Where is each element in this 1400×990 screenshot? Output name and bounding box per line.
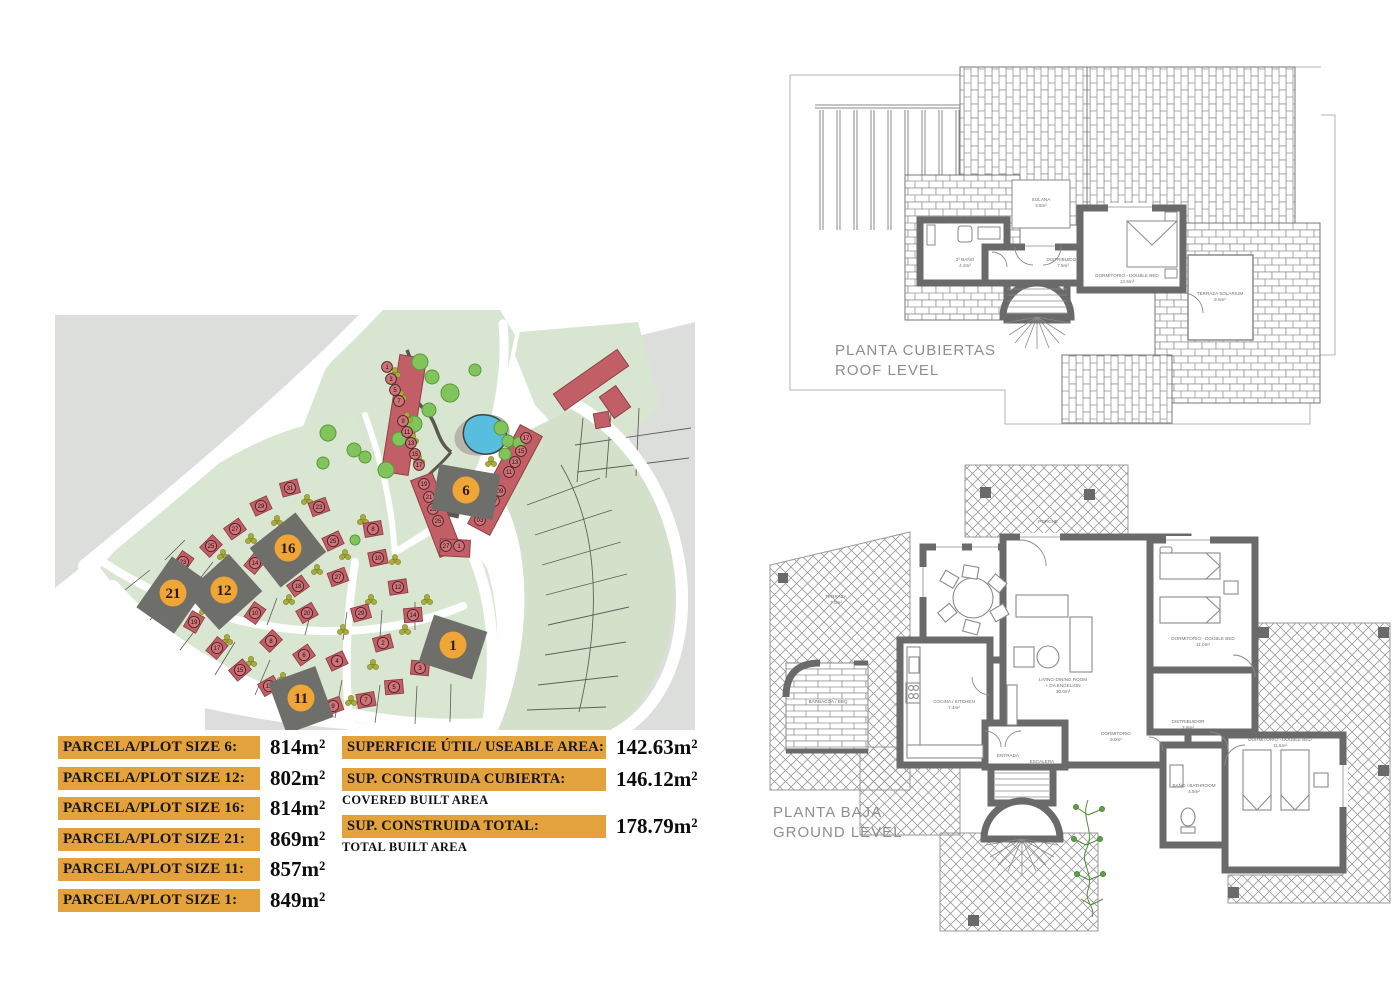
plot-label: PARCELA/PLOT SIZE 21: — [58, 828, 260, 851]
room-label: ENTRADA — [997, 753, 1020, 758]
room-label: TERRAZA SOLARIUM — [1197, 291, 1244, 296]
shrub-icon — [304, 494, 309, 499]
shrub-icon — [301, 499, 306, 504]
tree-icon — [494, 421, 508, 435]
highlighted-plot-number: 1 — [449, 638, 457, 654]
area-sublabel: TOTAL BUILT AREA — [342, 840, 698, 855]
area-label: SUP. CONSTRUIDA TOTAL: — [342, 815, 606, 838]
area-value: 142.63m² — [616, 736, 698, 759]
shrub-icon — [424, 594, 429, 599]
shrub-icon — [367, 664, 372, 669]
shrub-icon — [485, 461, 490, 466]
brochure-page: 3129272523191715131418102086423252781029… — [0, 0, 1400, 990]
room-label: 4.5m² — [1188, 789, 1200, 794]
plot-label: PARCELA/PLOT SIZE 12: — [58, 767, 260, 790]
shrub-icon — [314, 564, 319, 569]
plot-label: PARCELA/PLOT SIZE 11: — [58, 858, 260, 881]
plot-number: 14 — [410, 613, 417, 619]
room-label: DORMITORIO - DOUBLE BED — [1171, 636, 1235, 641]
area-label: SUPERFICIE ÚTIL/ USEABLE AREA: — [342, 736, 606, 759]
room-label: 2.8m² — [1182, 725, 1194, 730]
plot-number: 29 — [258, 504, 265, 510]
shrub-icon — [342, 549, 347, 554]
table-row: SUP. CONSTRUIDA TOTAL: 178.79m² TOTAL BU… — [342, 815, 698, 855]
tree-icon — [502, 435, 514, 447]
plot-number: 11 — [404, 430, 411, 436]
shrub-icon — [427, 599, 432, 604]
roof-plan: SOLANA3.5m²2º BAÑO4.2m²DISTRIBUIDOR7.5m²… — [775, 55, 1345, 425]
room-label: TERRAZA — [825, 594, 847, 599]
bbq-area — [786, 663, 868, 751]
plot-label: PARCELA/PLOT SIZE 16: — [58, 797, 260, 820]
plot-value: 857m² — [270, 858, 325, 881]
tree-icon — [412, 354, 428, 370]
tree-icon — [499, 448, 511, 460]
room-label: 7.5m² — [1057, 263, 1069, 268]
plot-number: 23 — [316, 505, 323, 511]
shrub-icon — [317, 569, 322, 574]
shrub-icon — [227, 639, 232, 644]
plot-number: 14 — [252, 561, 259, 567]
room-label: DISTRIBUIDOR — [1047, 257, 1081, 262]
sofa — [1070, 617, 1092, 672]
shrub-icon — [368, 594, 373, 599]
plot-number: 18 — [295, 584, 302, 590]
shrub-icon — [245, 538, 250, 543]
room-label: 3.5m² — [1035, 203, 1047, 208]
highlighted-plot-number: 11 — [294, 691, 308, 707]
room-label: PORCHE — [1038, 519, 1058, 524]
stair-bulb — [984, 801, 1060, 839]
shrub-icon — [248, 533, 253, 538]
room-label: + DA ENGELION — [1045, 683, 1080, 688]
room-label: DORMITORIO - DOUBLE BED — [1248, 737, 1312, 742]
plot-number: 03 — [477, 518, 484, 524]
room-label: DORMITORIO — [1101, 731, 1131, 736]
coffee-table — [1037, 646, 1059, 668]
shrub-icon — [389, 559, 394, 564]
shrub-icon — [392, 554, 397, 559]
shrub-icon — [399, 629, 404, 634]
room-label: COCINA / KITCHEN — [933, 699, 975, 704]
shrub-icon — [395, 559, 400, 564]
room-label: LIVING-DINING ROOM — [1039, 677, 1087, 682]
tree-icon — [378, 462, 394, 478]
tv-unit — [1007, 685, 1017, 725]
plot-number: 29 — [358, 611, 365, 617]
plot-number: 17 — [523, 436, 530, 442]
ground-plan: TERRAZA7.0m²PORCHELIVING-DINING ROOM+ DA… — [758, 435, 1400, 935]
dining-table — [953, 578, 993, 618]
shrub-icon — [248, 656, 253, 661]
roof-plan-subtitle: ROOF LEVEL — [835, 362, 939, 379]
room-label: 7.4m² — [948, 705, 960, 710]
ground-plan-title: PLANTA BAJA — [773, 804, 882, 821]
tree-icon — [422, 403, 436, 417]
area-sublabel: COVERED BUILT AREA — [342, 793, 698, 808]
plot-number: 15 — [237, 668, 244, 674]
shrub-icon — [289, 599, 294, 604]
plot-number: 10 — [375, 556, 382, 562]
shrub-icon — [373, 664, 378, 669]
shrub-icon — [224, 634, 229, 639]
shrub-icon — [337, 629, 342, 634]
plot-number: 27 — [232, 527, 239, 533]
room-label: DORMITORIO - DOUBLE BED — [1095, 273, 1159, 278]
plot-number: 19 — [191, 620, 198, 626]
kitchen-counter — [907, 745, 983, 758]
tree-icon — [441, 384, 459, 402]
plot-size-table: PARCELA/PLOT SIZE 6: 814m² PARCELA/PLOT … — [58, 736, 325, 912]
shrub-icon — [283, 599, 288, 604]
tree-icon — [320, 425, 336, 441]
plot-value: 869m² — [270, 828, 325, 851]
shrub-icon — [357, 519, 362, 524]
plot-number: 12 — [395, 585, 402, 591]
table-row: PARCELA/PLOT SIZE 12: 802m² — [58, 767, 325, 790]
stair-bulb — [1003, 283, 1071, 317]
plot-number: 15 — [412, 452, 419, 458]
tree-icon — [350, 535, 360, 545]
area-value: 178.79m² — [616, 815, 698, 838]
room-label: 9.5m² — [1214, 297, 1226, 302]
room-label: 30.0m² — [1056, 689, 1071, 694]
highlighted-plot-number: 12 — [217, 583, 232, 599]
table-row: PARCELA/PLOT SIZE 1: 849m² — [58, 889, 325, 912]
table-row: PARCELA/PLOT SIZE 21: 869m² — [58, 828, 325, 851]
shrub-icon — [491, 461, 496, 466]
shrub-icon — [348, 695, 353, 700]
shrub-icon — [286, 594, 291, 599]
plot-number: 15 — [518, 449, 525, 455]
room-label: BAÑO / BATHROOM — [1172, 782, 1215, 788]
site-plan: 3129272523191715131418102086423252781029… — [55, 310, 695, 730]
plot-label: PARCELA/PLOT SIZE 1: — [58, 889, 260, 912]
shrub-icon — [340, 624, 345, 629]
plot-value: 849m² — [270, 889, 325, 912]
plot-number: 10 — [252, 611, 259, 617]
tree-icon — [317, 457, 329, 469]
table-row: PARCELA/PLOT SIZE 6: 814m² — [58, 736, 325, 759]
plot-number: 25 — [435, 519, 442, 525]
shrub-icon — [220, 549, 225, 554]
shrub-icon — [217, 554, 222, 559]
highlighted-plot-number: 16 — [281, 541, 297, 557]
shrub-icon — [351, 700, 356, 705]
room-label: 7.0m² — [830, 600, 842, 605]
shrub-icon — [339, 554, 344, 559]
ground-plan-subtitle: GROUND LEVEL — [773, 824, 903, 841]
toilet — [1181, 808, 1195, 826]
shrub-icon — [392, 367, 397, 372]
plot-number: 17 — [214, 646, 221, 652]
roof-plan-title: PLANTA CUBIERTAS — [835, 342, 996, 359]
room-label: 4.2m² — [959, 263, 971, 268]
shrub-icon — [345, 554, 350, 559]
shrub-icon — [343, 629, 348, 634]
shrub-icon — [251, 661, 256, 666]
tree-icon — [469, 364, 481, 376]
shrub-icon — [360, 514, 365, 519]
plot-number: 11 — [506, 470, 513, 476]
tree-icon — [347, 443, 361, 457]
shrub-icon — [488, 456, 493, 461]
armchair — [1014, 647, 1034, 667]
shrub-icon — [370, 659, 375, 664]
plot-value: 814m² — [270, 736, 325, 759]
plot-number: 13 — [512, 460, 519, 466]
shrub-icon — [405, 629, 410, 634]
built-area-table: SUPERFICIE ÚTIL/ USEABLE AREA: 142.63m² … — [342, 736, 698, 855]
room-label: SOLANA — [1032, 197, 1052, 202]
plot-label: PARCELA/PLOT SIZE 6: — [58, 736, 260, 759]
plot-number: 17 — [416, 463, 423, 469]
shrub-icon — [371, 599, 376, 604]
plot-value: 802m² — [270, 767, 325, 790]
plot-number: 13 — [408, 441, 415, 447]
area-value: 146.12m² — [616, 768, 698, 791]
sofa — [1016, 595, 1068, 617]
shrub-icon — [271, 520, 276, 525]
shrub-icon — [345, 700, 350, 705]
plot-value: 814m² — [270, 797, 325, 820]
room-label: DISTRIBUIDOR — [1172, 719, 1206, 724]
plot-number: 20 — [304, 611, 311, 617]
table-row: PARCELA/PLOT SIZE 11: 857m² — [58, 858, 325, 881]
room-label: 13.5m² — [1120, 279, 1135, 284]
room-label: ESCALERA — [1030, 759, 1055, 764]
plot-number: 31 — [287, 486, 294, 492]
hall — [985, 247, 1090, 283]
room-label: 9.0m² — [1110, 737, 1122, 742]
highlighted-plot-number: 21 — [166, 586, 181, 602]
room-label: 2º BAÑO — [956, 256, 975, 262]
shrub-icon — [311, 569, 316, 574]
highlighted-plot-number: 6 — [462, 483, 470, 499]
table-row: PARCELA/PLOT SIZE 16: 814m² — [58, 797, 325, 820]
plot-number: 27 — [443, 544, 450, 550]
shrub-icon — [274, 515, 279, 520]
shrub-icon — [251, 538, 256, 543]
room-label: 11.0m² — [1196, 642, 1210, 647]
plot-number: 27 — [335, 575, 342, 581]
plot-number: 25 — [208, 544, 215, 550]
plot-number: 25 — [330, 539, 337, 545]
area-label: SUP. CONSTRUIDA CUBIERTA: — [342, 768, 606, 791]
kitchen-sink — [909, 657, 919, 673]
shrub-icon — [280, 672, 285, 677]
room-label: 11.5m² — [1273, 743, 1287, 748]
table-row: SUPERFICIE ÚTIL/ USEABLE AREA: 142.63m² — [342, 736, 698, 759]
table-row: SUP. CONSTRUIDA CUBIERTA: 146.12m² COVER… — [342, 768, 698, 808]
tree-icon — [425, 370, 439, 384]
room-label: 4.0m² — [1036, 765, 1048, 770]
shrub-icon — [402, 624, 407, 629]
room-label: BARBACOA / BBQ — [809, 699, 848, 704]
plot-number: 19 — [421, 482, 428, 488]
plot-number: 21 — [426, 495, 433, 501]
shrub-icon — [421, 599, 426, 604]
